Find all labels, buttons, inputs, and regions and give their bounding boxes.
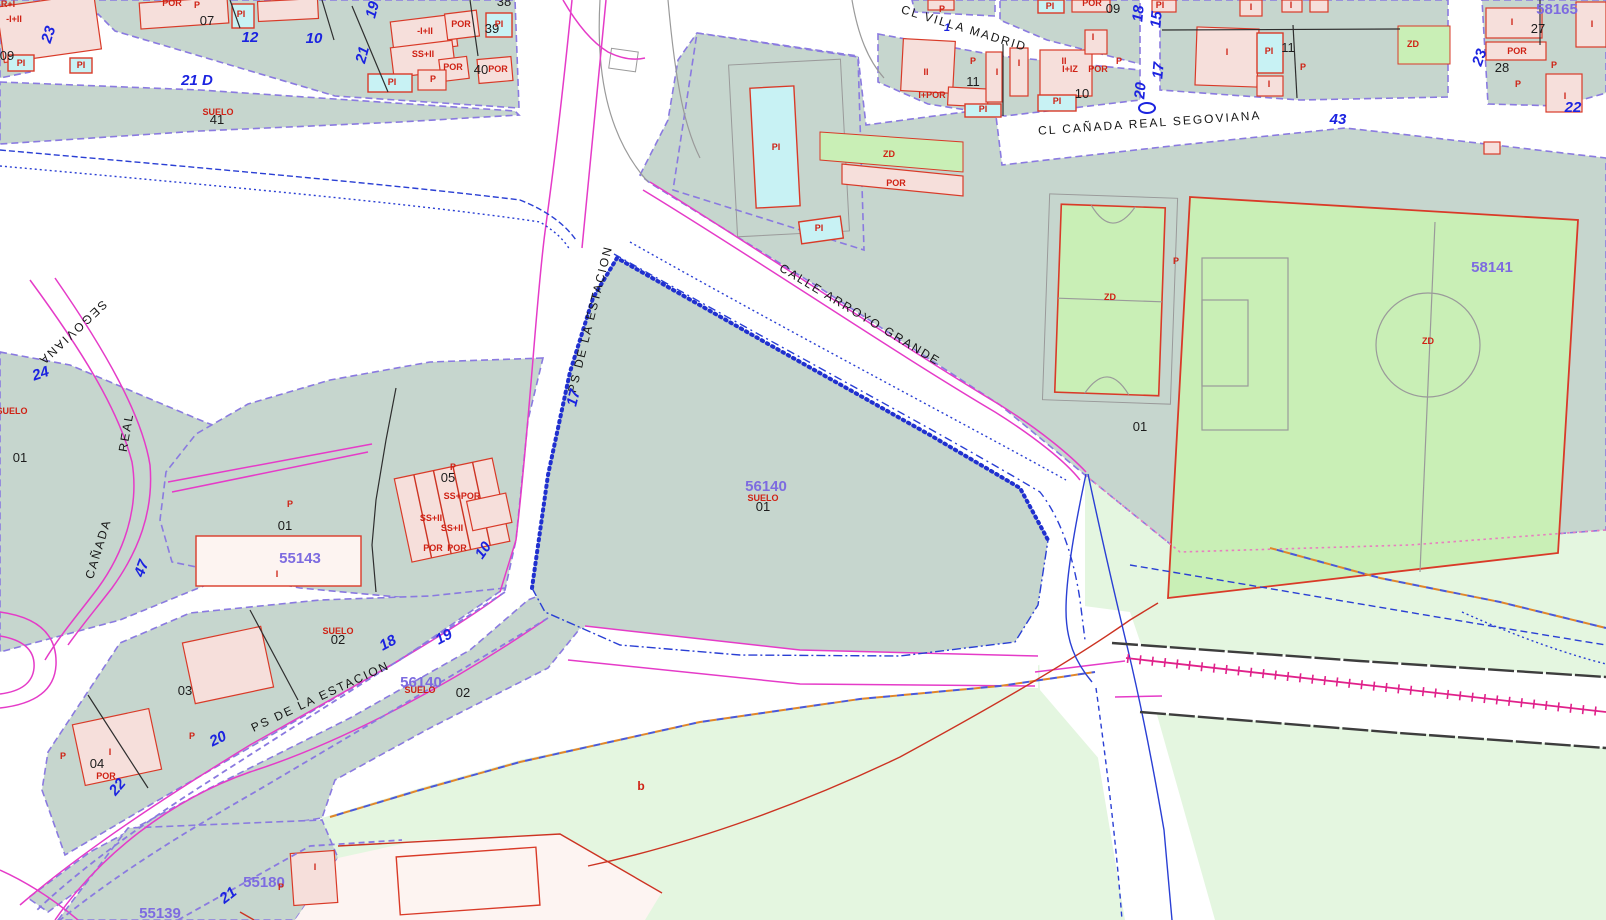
use-label: P xyxy=(1551,60,1557,70)
use-label: I xyxy=(1591,19,1594,29)
use-label: I xyxy=(1290,0,1293,10)
parcel-id: 58141 xyxy=(1471,259,1513,276)
street-number: 17 xyxy=(1149,61,1167,80)
lot-number: 38 xyxy=(497,0,511,9)
lot-number: 09 xyxy=(0,48,14,63)
use-label: P xyxy=(450,462,456,472)
use-label: PI xyxy=(1156,0,1165,10)
use-label: PI xyxy=(77,60,86,70)
use-label: POR xyxy=(1082,0,1102,8)
lot-number: 28 xyxy=(1495,60,1509,75)
use-label: POR xyxy=(1507,46,1527,56)
use-label: SS+II xyxy=(420,513,442,523)
use-label: I xyxy=(1268,79,1271,89)
use-label: R+I xyxy=(1,0,15,9)
use-label: I xyxy=(276,569,279,579)
use-label: PI xyxy=(1265,46,1274,56)
use-label: P xyxy=(194,0,200,10)
use-label: P xyxy=(1515,79,1521,89)
lot-number: 05 xyxy=(441,470,455,485)
use-label: PI xyxy=(495,19,504,29)
street-number: 1 xyxy=(944,22,950,34)
use-label: I xyxy=(1511,17,1514,27)
lot-number: 01 xyxy=(13,450,27,465)
street-number: 43 xyxy=(1329,111,1347,128)
suelo-label: SUELO xyxy=(322,626,353,636)
parcel-id: 55143 xyxy=(279,550,321,567)
use-label: SS+POR xyxy=(444,491,481,501)
lot-number: 01 xyxy=(278,518,292,533)
lot-number: 27 xyxy=(1531,21,1545,36)
use-label: PI xyxy=(1046,1,1055,11)
use-label: I xyxy=(1564,91,1567,101)
use-label: POR xyxy=(443,62,463,72)
building-55180 xyxy=(396,847,540,915)
lot-number: 04 xyxy=(90,756,104,771)
parcel-id: 55139 xyxy=(139,905,181,920)
use-label: SS+II xyxy=(412,49,434,59)
use-label: ZD xyxy=(1422,336,1434,346)
use-label: PI xyxy=(1053,96,1062,106)
street-number: 20 xyxy=(1131,81,1150,101)
use-label: ZD xyxy=(1407,39,1419,49)
use-label: SS+II xyxy=(441,523,463,533)
lot-number: 02 xyxy=(456,685,470,700)
street-number: 15 xyxy=(1147,10,1165,29)
use-label: POR xyxy=(886,178,906,188)
use-label: -I+II xyxy=(417,26,433,36)
use-label: P xyxy=(1116,56,1122,66)
suelo-label: SUELO xyxy=(0,406,28,416)
use-label: I xyxy=(314,862,317,872)
use-label: P xyxy=(189,731,195,741)
use-label: ZD xyxy=(883,149,895,159)
use-label: POR xyxy=(423,543,443,553)
use-label: PI xyxy=(772,142,781,152)
use-label: P xyxy=(278,882,284,892)
football-field xyxy=(1168,197,1578,598)
lot-number: 07 xyxy=(200,13,214,28)
use-label: POR xyxy=(447,543,467,553)
use-label: POR xyxy=(96,771,116,781)
lot-number: 40 xyxy=(474,62,488,77)
street-number: 21 D xyxy=(180,72,213,89)
use-label: P xyxy=(60,751,66,761)
use-label: P xyxy=(287,499,293,509)
use-label: P xyxy=(1173,256,1179,266)
street-number: 12 xyxy=(242,29,259,46)
use-label: PI xyxy=(388,77,397,87)
use-label: I+POR xyxy=(918,90,946,100)
use-label: I xyxy=(996,67,999,77)
lot-number: 10 xyxy=(1075,86,1089,101)
use-label: P xyxy=(1300,62,1306,72)
use-label: PI xyxy=(815,223,824,233)
use-label: P xyxy=(970,56,976,66)
lot-number: 11 xyxy=(966,74,980,89)
lot-number: 11 xyxy=(1281,40,1295,55)
use-label: PI xyxy=(17,58,26,68)
use-label: I xyxy=(1092,32,1095,42)
use-label: POR xyxy=(488,64,508,74)
building-55180-i xyxy=(290,851,338,906)
use-label: I xyxy=(109,747,112,757)
use-label: I xyxy=(1250,2,1253,12)
use-label: POR xyxy=(451,19,471,29)
use-label: P xyxy=(430,74,436,84)
use-label: II xyxy=(923,67,928,77)
parcel-id: 58165 xyxy=(1536,1,1578,18)
use-label: I+IZ xyxy=(1062,64,1078,74)
cadastral-map-canvas: CL VILLA MADRIDCL CAÑADA REAL SEGOVIANAC… xyxy=(0,0,1606,920)
subparcel-label: b xyxy=(637,779,644,793)
use-label: POR xyxy=(1088,64,1108,74)
suelo-label: SUELO xyxy=(747,493,778,503)
street-number: 18 xyxy=(1129,4,1147,23)
street-number: 10 xyxy=(306,30,323,47)
use-label: POR xyxy=(162,0,182,8)
suelo-label: SUELO xyxy=(202,107,233,117)
use-label: ZD xyxy=(1104,292,1116,302)
lot-number: 01 xyxy=(1133,419,1147,434)
use-label: -I+II xyxy=(6,14,22,24)
use-label: I xyxy=(1018,58,1021,68)
use-label: PI xyxy=(979,104,988,114)
lot-number: 03 xyxy=(178,683,192,698)
suelo-label: SUELO xyxy=(404,685,435,695)
use-label: PI xyxy=(237,9,246,19)
use-label: P xyxy=(939,4,945,14)
use-label: I xyxy=(1226,47,1229,57)
lot-number: 09 xyxy=(1106,1,1120,16)
street-number: 22 xyxy=(1564,99,1582,116)
